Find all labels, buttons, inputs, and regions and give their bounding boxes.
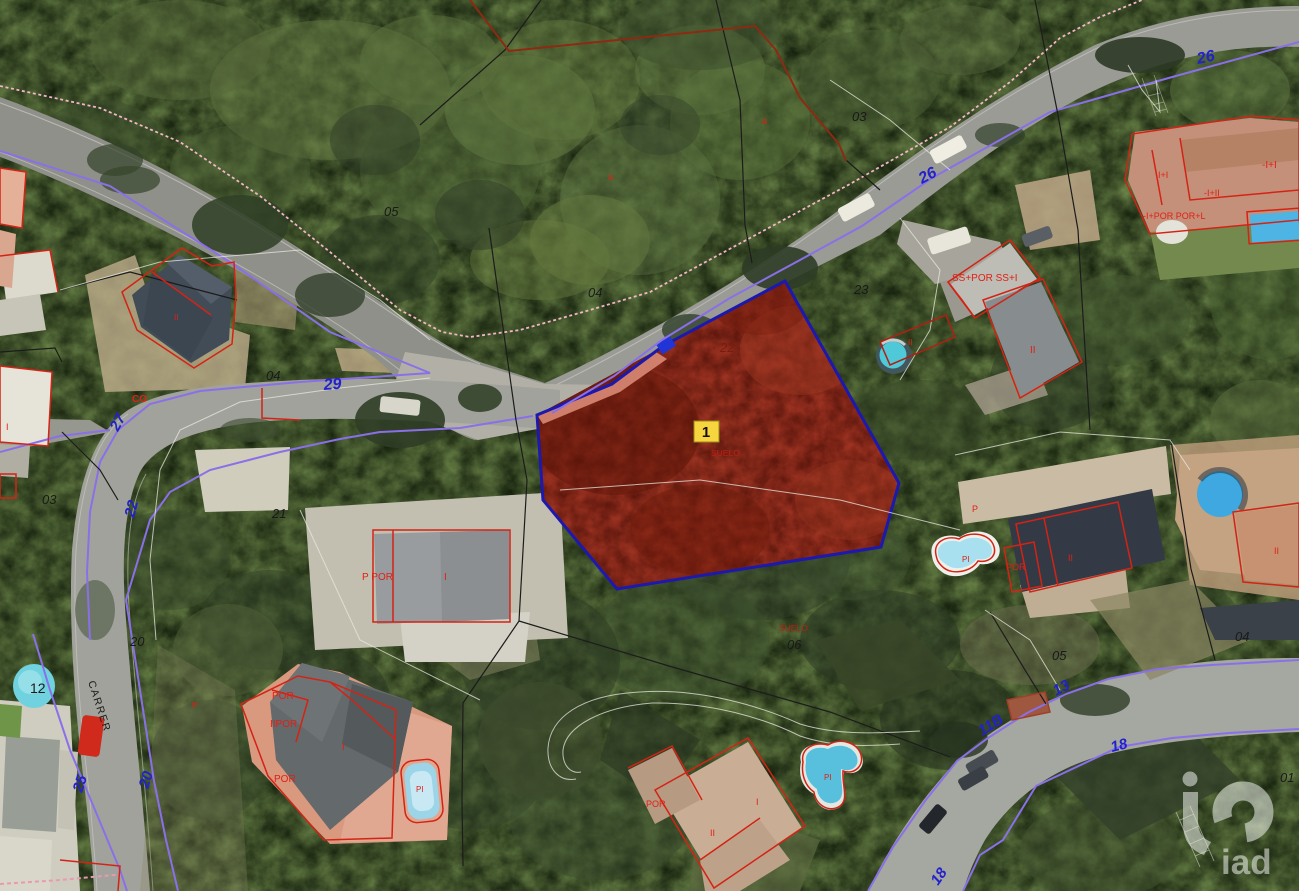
svg-text:-I+POR POR+L: -I+POR POR+L [1143, 211, 1206, 221]
svg-text:II: II [1030, 345, 1036, 356]
svg-text:SUELO: SUELO [779, 623, 808, 633]
svg-text:03: 03 [42, 492, 57, 507]
svg-text:-I+II: -I+II [1204, 188, 1220, 198]
svg-text:POR: POR [646, 799, 666, 809]
svg-text:a: a [762, 116, 767, 126]
svg-text:PI: PI [416, 785, 424, 794]
svg-text:POR: POR [272, 691, 294, 702]
svg-text:POR: POR [1006, 562, 1026, 572]
svg-text:P: P [972, 504, 978, 514]
svg-text:II: II [1068, 553, 1073, 563]
svg-text:20: 20 [129, 634, 145, 649]
svg-text:CO: CO [132, 394, 147, 405]
svg-text:I: I [154, 269, 156, 278]
svg-text:I: I [6, 422, 9, 432]
svg-text:01: 01 [1280, 770, 1294, 785]
svg-text:04: 04 [588, 285, 602, 300]
svg-text:1: 1 [702, 424, 710, 441]
svg-text:PI: PI [962, 555, 970, 564]
svg-text:P POR: P POR [362, 572, 393, 583]
svg-text:I: I [756, 797, 759, 807]
svg-text:22: 22 [719, 340, 735, 355]
svg-text:POR: POR [274, 774, 296, 785]
svg-text:29: 29 [322, 376, 342, 394]
svg-text:II: II [174, 313, 178, 322]
svg-text:05: 05 [1052, 648, 1067, 663]
svg-text:PI: PI [824, 773, 832, 782]
svg-text:06: 06 [787, 637, 802, 652]
svg-text:a: a [608, 172, 613, 182]
svg-text:II: II [908, 338, 912, 347]
svg-text:IIPOR: IIPOR [270, 719, 297, 730]
svg-text:21: 21 [271, 506, 286, 521]
svg-text:I: I [342, 742, 345, 753]
svg-text:03: 03 [852, 109, 867, 124]
svg-text:I+I: I+I [1158, 170, 1168, 180]
svg-text:I: I [444, 572, 447, 583]
svg-text:P: P [192, 701, 197, 710]
svg-text:12: 12 [30, 680, 46, 696]
svg-text:iad: iad [1221, 843, 1272, 882]
svg-text:04: 04 [1235, 629, 1249, 644]
svg-text:II: II [1274, 546, 1279, 556]
svg-text:-I+I: -I+I [1262, 160, 1277, 171]
svg-text:II: II [710, 828, 715, 838]
svg-text:SUELO: SUELO [711, 448, 740, 458]
svg-text:SS+POR SS+I: SS+POR SS+I [952, 273, 1018, 284]
svg-text:05: 05 [384, 204, 399, 219]
svg-text:04: 04 [266, 368, 280, 383]
svg-text:23: 23 [853, 282, 869, 297]
